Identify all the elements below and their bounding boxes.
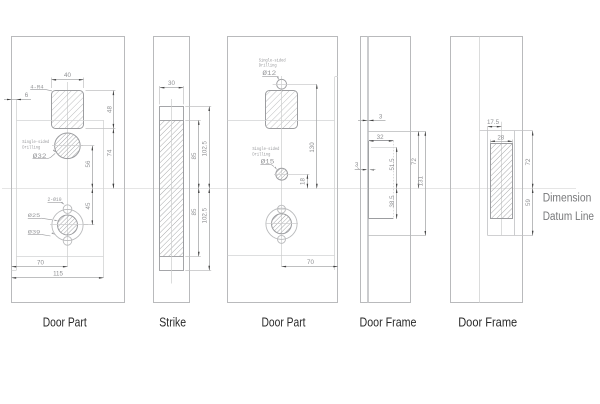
svg-text:Ø25: Ø25: [28, 212, 41, 219]
svg-text:Door Frame: Door Frame: [458, 315, 517, 330]
svg-text:74: 74: [106, 149, 113, 156]
svg-text:Single-sided: Single-sided: [259, 57, 286, 63]
svg-text:56: 56: [85, 160, 92, 167]
svg-text:28: 28: [497, 135, 504, 142]
svg-text:131: 131: [418, 175, 425, 186]
svg-text:85: 85: [191, 152, 198, 159]
svg-text:Door Part: Door Part: [43, 315, 87, 330]
svg-text:70: 70: [307, 259, 314, 266]
svg-text:Dimension: Dimension: [543, 192, 592, 204]
svg-text:Door Frame: Door Frame: [360, 315, 417, 330]
svg-text:72: 72: [525, 158, 532, 165]
svg-text:70: 70: [37, 259, 44, 266]
svg-text:17.5: 17.5: [487, 119, 500, 126]
svg-text:Datum Line: Datum Line: [543, 211, 594, 223]
svg-text:Single-sided: Single-sided: [252, 146, 279, 152]
svg-text:18: 18: [300, 178, 307, 185]
svg-text:130: 130: [309, 142, 316, 153]
svg-text:Drilling: Drilling: [22, 145, 40, 151]
svg-text:45: 45: [85, 202, 92, 209]
svg-text:72: 72: [411, 158, 418, 165]
svg-text:115: 115: [53, 271, 63, 278]
svg-text:Drilling: Drilling: [259, 63, 277, 69]
svg-text:Single-sided: Single-sided: [22, 139, 49, 145]
svg-text:102.5: 102.5: [202, 140, 209, 156]
svg-text:59: 59: [525, 199, 532, 206]
svg-text:3: 3: [379, 114, 383, 121]
svg-text:32: 32: [377, 134, 384, 141]
svg-text:Strike: Strike: [159, 315, 186, 330]
svg-text:51.5: 51.5: [389, 158, 396, 171]
svg-text:38.5: 38.5: [389, 195, 396, 208]
svg-text:40: 40: [64, 72, 71, 79]
svg-text:102.5: 102.5: [202, 207, 209, 223]
svg-text:Door Part: Door Part: [262, 315, 306, 330]
svg-text:48: 48: [106, 106, 113, 113]
svg-text:6: 6: [25, 92, 29, 99]
svg-text:85: 85: [191, 208, 198, 215]
svg-text:2-Ø10: 2-Ø10: [48, 196, 63, 203]
svg-text:Ø12: Ø12: [262, 70, 276, 77]
svg-text:Drilling: Drilling: [252, 151, 270, 157]
svg-text:Ø32: Ø32: [33, 153, 47, 160]
svg-text:30: 30: [168, 80, 175, 87]
svg-text:3: 3: [355, 161, 359, 168]
